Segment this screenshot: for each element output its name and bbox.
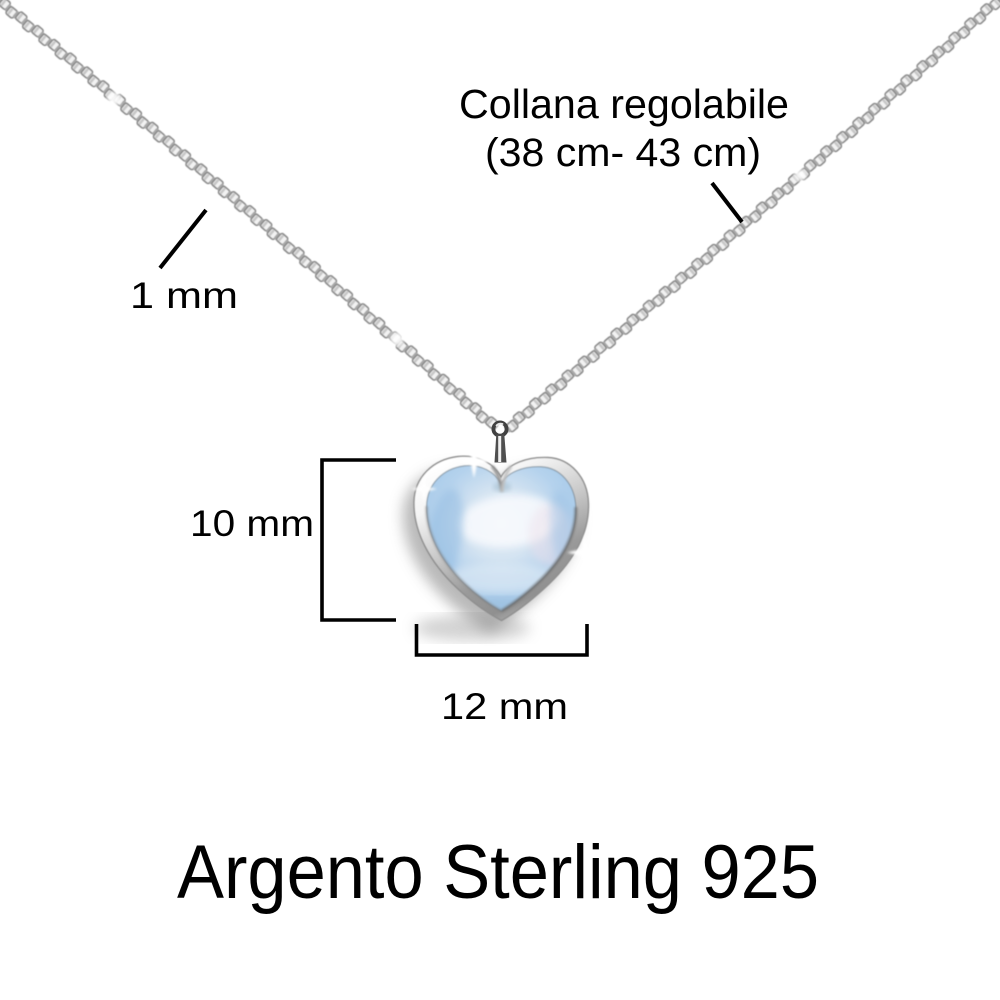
svg-text:12 mm: 12 mm [441,686,568,727]
svg-text:1 mm: 1 mm [130,275,238,316]
svg-text:10 mm: 10 mm [190,503,314,544]
svg-text:(38 cm- 43 cm): (38 cm- 43 cm) [485,131,761,175]
svg-text:Collana regolabile: Collana regolabile [459,81,789,127]
svg-text:Argento Sterling 925: Argento Sterling 925 [177,830,819,915]
